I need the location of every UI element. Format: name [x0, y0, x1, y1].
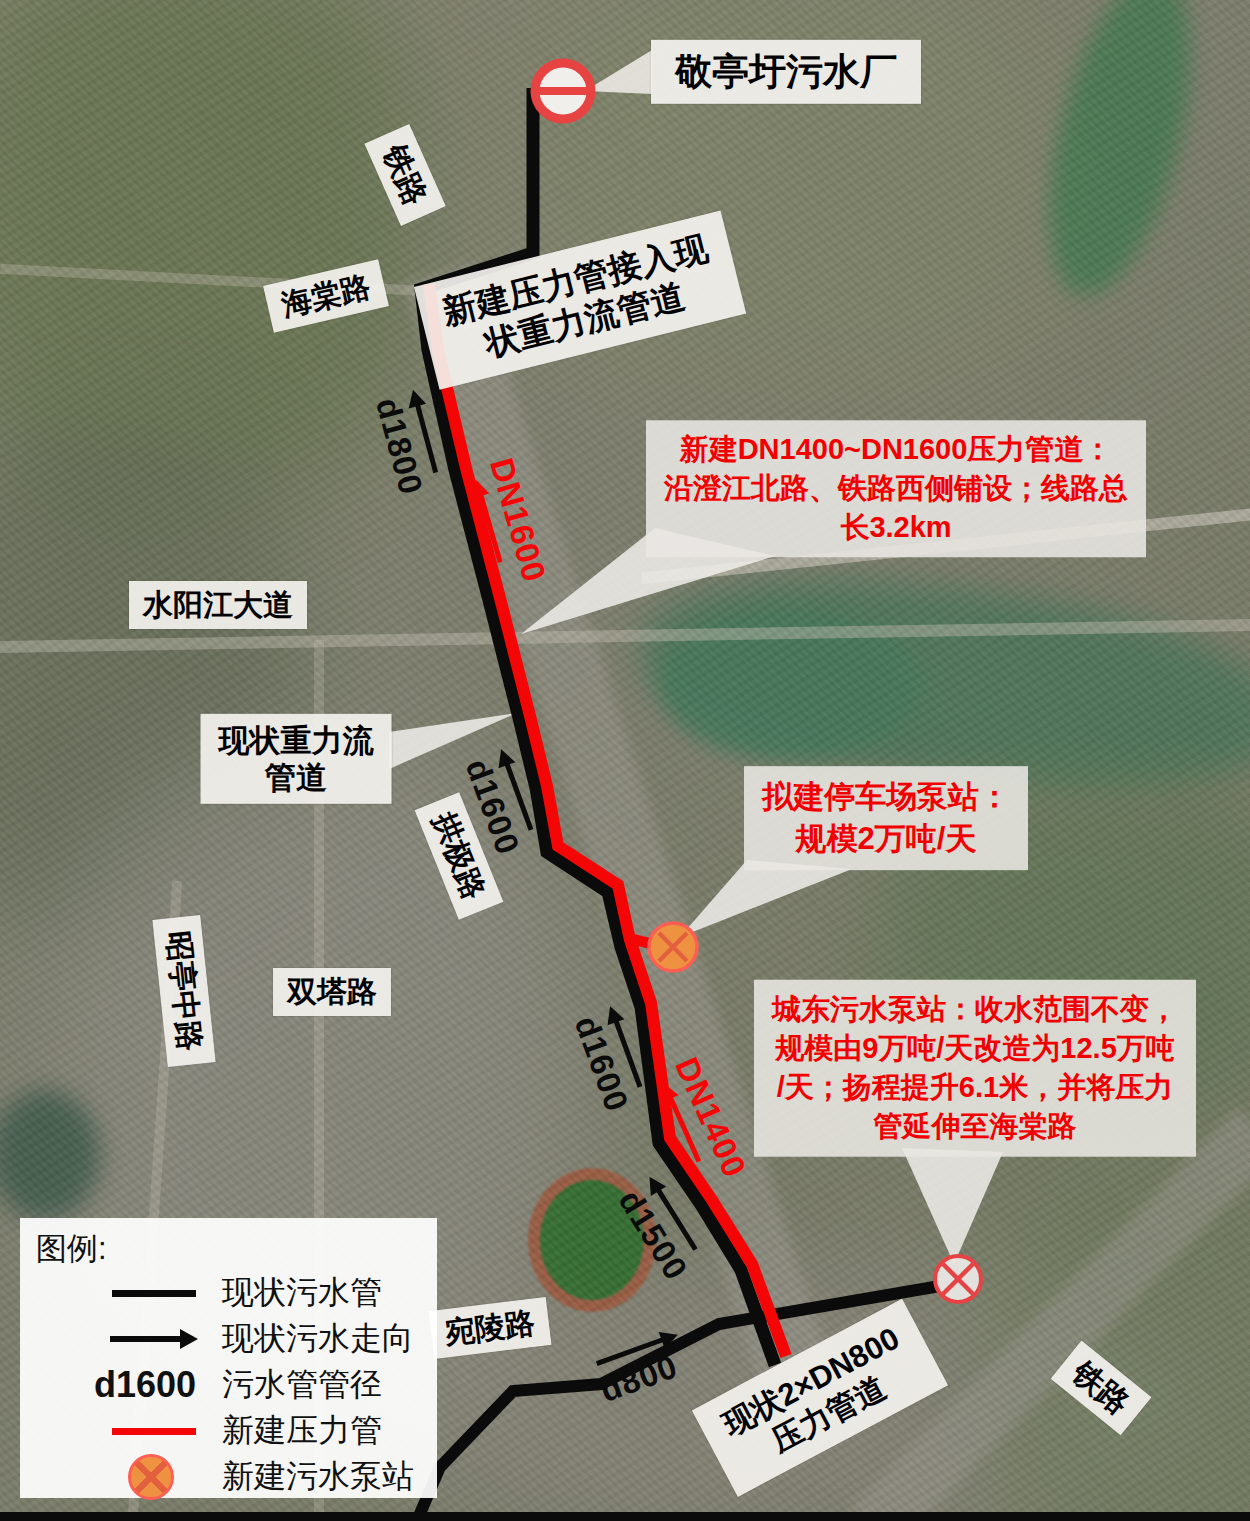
sewage-plant-icon — [535, 63, 591, 119]
callout-line: 沿澄江北路、铁路西侧铺设；线路总 — [664, 469, 1128, 508]
black-line-icon — [112, 1290, 196, 1297]
legend-label: 新建污水泵站 — [222, 1455, 414, 1499]
callout-line: 规模由9万吨/天改造为12.5万吨 — [772, 1029, 1178, 1068]
bottom-pipe-bar — [0, 1512, 1250, 1521]
pipeline-planning-map: 敬亭圩污水厂 铁路 海棠路 新建压力管接入现 状重力流管道 水阳江大道 现状重力… — [0, 0, 1250, 1521]
pump-station-icon — [128, 1454, 174, 1500]
note-line: 管道 — [219, 759, 374, 796]
legend-row-flow-direction: 现状污水走向 — [36, 1316, 437, 1362]
legend-symbol — [36, 1454, 196, 1500]
legend-label: 现状污水管 — [222, 1271, 382, 1315]
callout-line: 城东污水泵站：收水范围不变， — [772, 990, 1178, 1029]
legend-row-new-pump-station: 新建污水泵站 — [36, 1454, 437, 1500]
legend-symbol — [36, 1336, 196, 1342]
legend: 图例: 现状污水管 现状污水走向 d1600 污水管管径 新建压力管 新建污水泵… — [20, 1218, 437, 1498]
black-arrow-icon — [110, 1336, 182, 1342]
chengdong-callout-pointer — [902, 1148, 1003, 1264]
road-label-text: 宛陵路 — [443, 1306, 536, 1350]
chengdong-pump-callout: 城东污水泵站：收水范围不变， 规模由9万吨/天改造为12.5万吨 /天；扬程提升… — [754, 980, 1196, 1157]
legend-symbol — [36, 1428, 196, 1435]
road-label-text: 水阳江大道 — [143, 588, 293, 621]
road-label-text: 双塔路 — [287, 975, 377, 1008]
legend-label: 新建压力管 — [222, 1409, 382, 1453]
plant-label-text: 敬亭圩污水厂 — [675, 51, 897, 92]
callout-line: 拟建停车场泵站： — [762, 776, 1010, 818]
note-line: 现状重力流 — [219, 722, 374, 759]
new-pump-station-icon — [649, 923, 697, 971]
callout-line: /天；扬程提升6.1米，并将压力 — [772, 1068, 1178, 1107]
legend-row-existing-pipe: 现状污水管 — [36, 1270, 437, 1316]
legend-row-pipe-diameter: d1600 污水管管径 — [36, 1362, 437, 1408]
legend-row-new-pressure-pipe: 新建压力管 — [36, 1408, 437, 1454]
road-label-shuangta: 双塔路 — [273, 968, 391, 1016]
diameter-sample-text: d1600 — [94, 1364, 196, 1406]
legend-symbol — [36, 1290, 196, 1297]
gravity-pipe-label: 现状重力流 管道 — [201, 714, 392, 804]
callout-line: 长3.2km — [664, 509, 1128, 548]
legend-title: 图例: — [36, 1228, 437, 1270]
dn-pipeline-callout: 新建DN1400~DN1600压力管道： 沿澄江北路、铁路西侧铺设；线路总 长3… — [646, 420, 1146, 557]
parking-pump-callout-pointer — [680, 860, 852, 937]
road-label-text: 昭亭中路 — [162, 930, 207, 1053]
callout-line: 新建DN1400~DN1600压力管道： — [664, 430, 1128, 469]
plant-label: 敬亭圩污水厂 — [651, 40, 921, 104]
callout-line: 规模2万吨/天 — [762, 818, 1010, 860]
existing-pump-station-icon — [935, 1256, 981, 1302]
legend-label: 现状污水走向 — [222, 1317, 414, 1361]
legend-label: 污水管管径 — [222, 1363, 382, 1407]
parking-pump-callout: 拟建停车场泵站： 规模2万吨/天 — [744, 766, 1028, 870]
callout-line: 管延伸至海棠路 — [772, 1107, 1178, 1146]
red-line-icon — [112, 1428, 196, 1435]
legend-symbol: d1600 — [36, 1364, 196, 1406]
road-label-shuiyangjiang: 水阳江大道 — [129, 581, 307, 629]
